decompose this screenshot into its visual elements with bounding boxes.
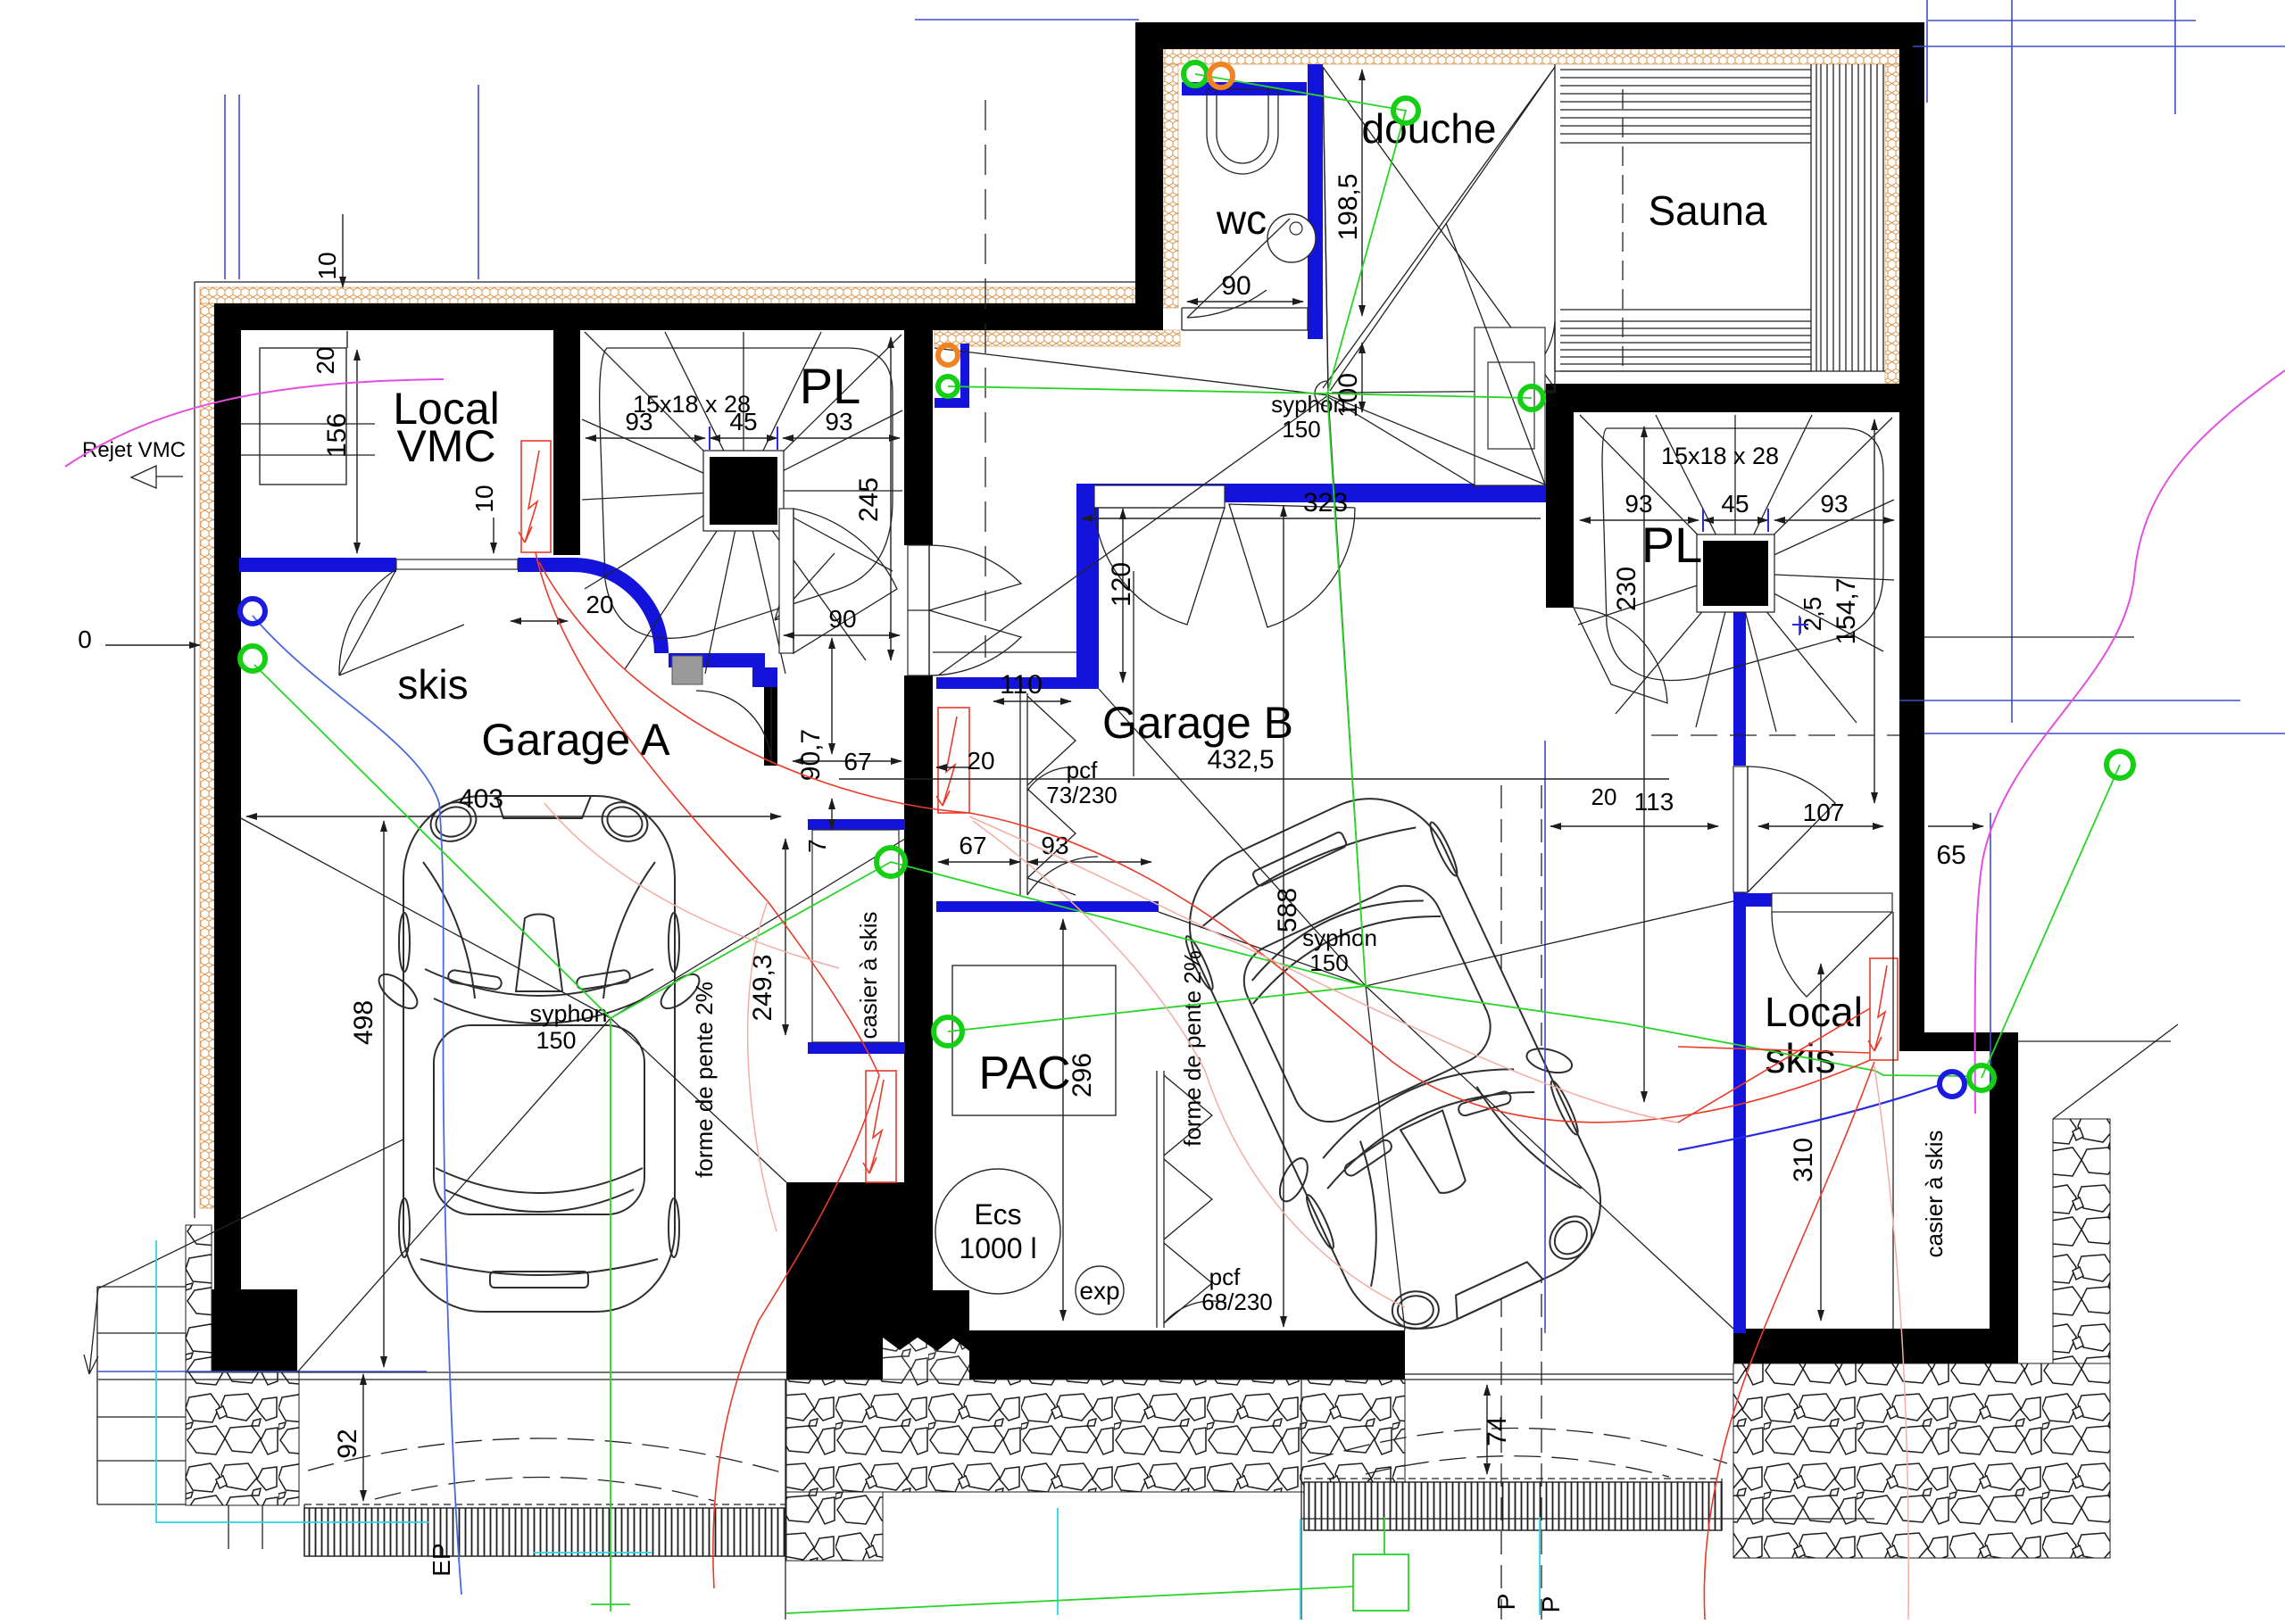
svg-text:P: P	[1537, 1596, 1565, 1613]
svg-text:93: 93	[1624, 490, 1652, 518]
svg-text:Garage A: Garage A	[481, 715, 670, 765]
svg-text:VMC: VMC	[396, 421, 495, 471]
svg-text:73/230: 73/230	[1046, 782, 1118, 808]
svg-text:198,5: 198,5	[1334, 173, 1363, 240]
svg-text:90: 90	[1221, 271, 1251, 301]
svg-text:20: 20	[312, 346, 339, 374]
svg-text:67: 67	[959, 832, 986, 859]
svg-text:150: 150	[536, 1027, 576, 1054]
svg-text:498: 498	[349, 1000, 378, 1045]
svg-text:245: 245	[854, 477, 884, 522]
svg-text:230: 230	[1612, 567, 1641, 611]
svg-text:68/230: 68/230	[1201, 1288, 1273, 1315]
svg-text:1000 l: 1000 l	[959, 1232, 1036, 1264]
svg-text:120: 120	[1107, 562, 1136, 607]
svg-text:10: 10	[313, 252, 341, 279]
svg-text:Ecs: Ecs	[974, 1198, 1021, 1230]
svg-text:15x18 x 28: 15x18 x 28	[1661, 443, 1779, 469]
svg-text:154,7: 154,7	[1832, 577, 1861, 644]
svg-text:93: 93	[1820, 490, 1848, 518]
svg-text:10: 10	[470, 485, 498, 512]
svg-text:pcf: pcf	[1209, 1264, 1241, 1290]
svg-text:exp: exp	[1079, 1277, 1119, 1305]
svg-text:403: 403	[459, 784, 503, 814]
svg-text:588: 588	[1273, 888, 1302, 932]
svg-text:Local: Local	[1765, 989, 1863, 1035]
svg-text:45: 45	[1721, 490, 1749, 518]
svg-text:310: 310	[1789, 1138, 1818, 1182]
svg-text:432,5: 432,5	[1207, 745, 1274, 775]
svg-text:67: 67	[843, 748, 871, 775]
svg-text:150: 150	[1282, 416, 1320, 443]
svg-text:syphon: syphon	[1302, 924, 1377, 951]
svg-text:93: 93	[625, 408, 652, 435]
svg-text:skis: skis	[1765, 1035, 1835, 1081]
svg-text:90,7: 90,7	[796, 729, 826, 781]
svg-text:65: 65	[1936, 841, 1965, 870]
svg-text:wc: wc	[1216, 196, 1267, 243]
svg-text:92: 92	[333, 1429, 362, 1458]
svg-text:7: 7	[803, 839, 831, 853]
svg-text:Sauna: Sauna	[1648, 187, 1766, 234]
svg-text:EP: EP	[428, 1543, 455, 1576]
svg-text:P: P	[1492, 1594, 1520, 1611]
svg-text:20: 20	[586, 591, 613, 618]
svg-text:douche: douche	[1362, 105, 1497, 152]
svg-text:PL: PL	[1641, 517, 1703, 573]
svg-text:pcf: pcf	[1067, 757, 1098, 783]
svg-text:323: 323	[1303, 488, 1348, 518]
svg-text:90: 90	[828, 605, 856, 633]
svg-text:93: 93	[825, 408, 852, 435]
svg-text:110: 110	[1000, 670, 1043, 700]
svg-text:PL: PL	[800, 358, 861, 414]
svg-text:0: 0	[78, 626, 92, 653]
svg-text:296: 296	[1068, 1053, 1097, 1098]
svg-text:156: 156	[322, 413, 352, 458]
svg-text:casier à skis: casier à skis	[1921, 1130, 1948, 1257]
svg-text:PAC: PAC	[978, 1048, 1070, 1099]
svg-text:74: 74	[1483, 1416, 1512, 1446]
svg-text:107: 107	[1803, 799, 1845, 826]
svg-text:forme de pente 2%: forme de pente 2%	[691, 982, 718, 1178]
svg-text:skis: skis	[397, 661, 468, 708]
svg-text:20: 20	[967, 747, 994, 775]
svg-text:2,5: 2,5	[1799, 597, 1826, 632]
svg-text:45: 45	[729, 408, 757, 435]
svg-text:casier à skis: casier à skis	[855, 911, 882, 1039]
svg-text:syphon: syphon	[1271, 391, 1346, 418]
svg-text:Rejet VMC: Rejet VMC	[82, 438, 186, 462]
svg-text:Garage B: Garage B	[1102, 698, 1293, 748]
svg-text:113: 113	[1634, 788, 1674, 816]
svg-text:20: 20	[1591, 783, 1617, 810]
